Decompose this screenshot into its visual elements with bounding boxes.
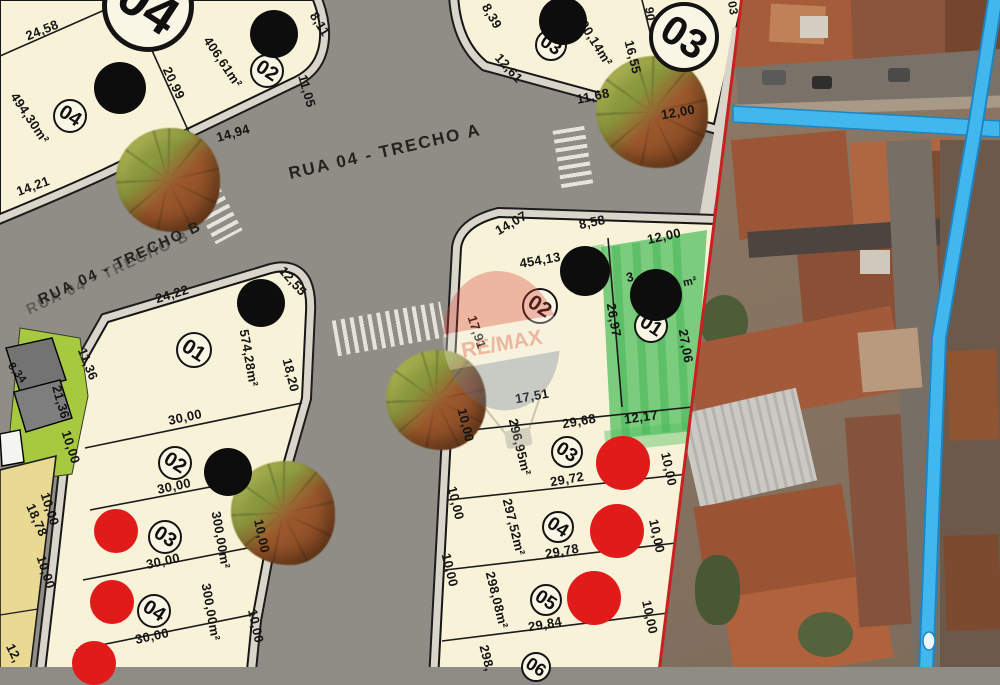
quadra-number-badge-number: 03 [654,7,715,66]
measurement-label: 300,00m² [209,510,234,570]
black-marker-dot [94,62,146,114]
lot-number-badge: 01 [176,332,212,368]
measurement-label: 12,00 [646,225,682,247]
measurement-label: 11,05 [295,73,319,109]
red-marker-dot [72,641,116,685]
black-marker-dot [204,448,252,496]
lot-number-badge-number: 04 [544,513,572,540]
measurement-label: 10,00 [639,599,661,635]
red-marker-dot [94,509,138,553]
measurement-label: 8,58 [577,212,606,232]
lot-number-badge: 02 [250,54,284,88]
black-marker-dot [250,10,298,58]
aerial-roof [943,534,1000,631]
lot-number-badge: 04 [53,99,87,133]
measurement-label: 494,30m² [8,90,53,147]
measurement-label: 14,21 [14,173,51,199]
lot-number-badge-number: 03 [150,523,180,552]
measurement-label: 10,00 [34,553,59,590]
aerial-car [812,76,832,89]
measurement-label: 10,00 [658,451,680,487]
measurement-label: 10,00 [439,552,462,589]
measurement-label: 24,58 [23,17,60,44]
lot-number-badge: 05 [530,584,562,616]
quadra-number-badge-number: 04 [108,0,188,45]
measurement-label: 10,00 [251,518,273,554]
red-marker-dot [590,504,644,558]
measurement-label: 14,94 [215,121,252,145]
measurement-label: 29,84 [527,614,563,635]
lot-number-badge-number: 02 [252,57,282,86]
black-marker-dot [539,0,587,45]
aerial-car [762,70,786,85]
quadra-number-badge: 03 [649,2,719,72]
measurement-label: 20,99 [160,64,188,101]
lot-number-badge: 02 [158,446,192,480]
measurement-label: 12,00 [660,102,696,123]
lot-number-badge-number: 04 [55,102,85,131]
measurement-label: 30,00 [167,406,203,428]
lot-number-badge: 03 [148,520,182,554]
measurement-label: 10,00 [245,608,267,644]
measurement-label: 18,20 [280,357,303,394]
aerial-roof [946,349,999,441]
measurement-label: 16,55 [622,39,645,76]
aerial-patch [857,327,922,392]
lot-number-badge-number: 04 [139,597,169,626]
red-marker-dot [596,436,650,490]
measurement-label: 21,36 [49,384,73,421]
lot-number-badge-number: 01 [178,335,209,365]
measurement-label: 10,00 [445,485,468,522]
measurement-label: 24,22 [154,282,191,306]
measurement-label: 11,68 [575,85,611,107]
measurement-label: 14,07 [493,208,530,238]
measurement-label: 297,52m² [500,497,529,557]
measurement-label: 12,61 [492,50,526,85]
measurement-label: 29,72 [549,469,585,490]
measurement-label: 298, [477,643,498,672]
lot-number-badge: 04 [542,511,574,543]
measurement-label: 298,08m² [483,570,512,630]
measurement-label: 10,00 [59,428,84,465]
measurement-label: 406,61m² [201,34,246,91]
measurement-label: 11,36 [75,346,101,383]
black-marker-dot [237,279,285,327]
aerial-roof [945,0,1000,55]
measurement-label: 03 [725,0,741,16]
listing-map-image: { "colors": { "lot_fill": "#f8f2d8", "st… [0,0,1000,667]
aerial-roof [731,130,854,240]
aerial-tree [695,555,740,625]
aerial-building [800,16,828,38]
measurement-label: 29,78 [544,541,580,562]
measurement-label: 8,34 [5,360,28,385]
red-marker-dot [90,580,134,624]
measurement-label: 12,17 [623,407,659,427]
measurement-label: 27,06 [676,328,697,364]
measurement-label: 10,00 [646,518,668,554]
measurement-label: 574,28m² [237,328,262,388]
street-name-label: RUA 04 - TRECHO A [287,120,484,184]
measurement-label: 12, [3,641,25,665]
lot-number-badge-number: 06 [523,654,550,680]
measurement-label: 26,97 [604,302,625,338]
measurement-label: m² [682,275,698,290]
aerial-tree [798,612,853,657]
lot-number-badge: 04 [137,594,171,628]
measurement-label: 8,39 [479,1,505,31]
measurement-label: 8,11 [307,9,333,39]
measurement-label: 30,00 [134,625,170,647]
lot-number-badge: 06 [521,652,551,682]
lot-number-badge-number: 02 [160,449,190,478]
measurement-label: 300,00m² [199,582,224,642]
quadra-number-badge: 04 [102,0,194,52]
aerial-building [860,250,890,274]
lot-number-badge-number: 05 [532,586,560,613]
red-marker-dot [567,571,621,625]
black-marker-dot [630,269,682,321]
aerial-car [888,68,910,82]
